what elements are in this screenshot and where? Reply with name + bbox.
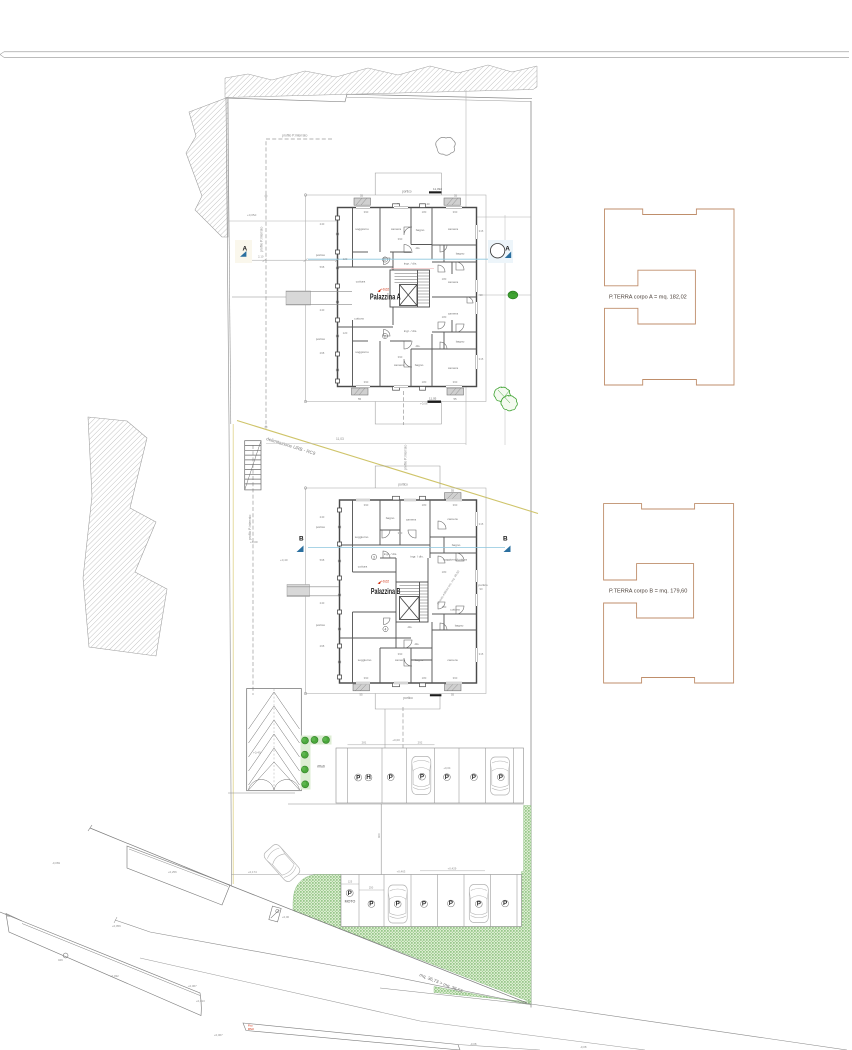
svg-text:portico: portico [316,337,326,341]
svg-text:11,03: 11,03 [336,437,344,441]
svg-text:2,10: 2,10 [258,255,264,259]
svg-text:profilo P.interrato: profilo P.interrato [248,515,252,540]
svg-text:55: 55 [359,693,363,697]
svg-text:A: A [243,246,248,253]
svg-text:292: 292 [418,741,423,745]
svg-text:-0,069: -0,069 [52,861,60,865]
svg-text:90: 90 [479,293,483,297]
svg-text:soggiorno: soggiorno [358,658,372,662]
svg-text:dis.: dis. [416,344,421,348]
svg-text:55: 55 [454,194,458,198]
svg-text:P: P [396,901,400,908]
svg-text:240: 240 [320,515,325,519]
svg-text:P: P [389,774,393,781]
svg-text:180: 180 [422,210,427,214]
svg-text:11,09d: 11,09d [433,187,442,191]
svg-text:bagno: bagno [415,658,424,662]
svg-text:cottura: cottura [354,317,364,321]
svg-text:+0,032: +0,032 [110,974,119,978]
svg-text:P: P [499,774,503,781]
svg-text:+0,04: +0,04 [443,766,451,770]
svg-text:3: 3 [373,556,375,560]
svg-text:soggiorno/cottura: soggiorno/cottura [443,558,467,562]
svg-text:RSU: RSU [248,1027,254,1031]
svg-text:568: 568 [320,265,325,269]
svg-text:11,05: 11,05 [429,397,437,401]
svg-text:portico: portico [398,483,408,487]
svg-text:P: P [477,901,481,908]
svg-text:camera: camera [406,518,417,522]
svg-text:+0,02: +0,02 [381,580,389,584]
svg-text:bagno: bagno [456,340,465,344]
svg-text:bagno: bagno [416,228,425,232]
svg-text:+0,06: +0,06 [420,402,428,406]
svg-text:2: 2 [384,335,386,339]
svg-text:A: A [505,245,510,252]
svg-text:390: 390 [398,355,403,359]
svg-text:soggiorno: soggiorno [355,227,369,231]
svg-text:profilo P.interrato: profilo P.interrato [282,134,307,138]
svg-text:180: 180 [442,570,447,574]
svg-text:camera: camera [447,658,458,662]
svg-text:180: 180 [422,503,427,507]
svg-text:240: 240 [320,222,325,226]
svg-text:+0,00: +0,00 [282,915,290,919]
svg-text:P: P [420,773,424,780]
svg-text:55: 55 [451,489,455,493]
svg-text:315: 315 [479,522,484,526]
svg-text:P.TERRA corpo A = mq. 182,02: P.TERRA corpo A = mq. 182,02 [609,295,687,301]
svg-text:MOTO: MOTO [345,900,356,904]
svg-text:360: 360 [453,503,458,507]
svg-text:120: 120 [343,331,348,335]
svg-text:P: P [445,774,449,781]
svg-text:55: 55 [360,194,364,198]
svg-text:camera: camera [394,363,405,367]
svg-text:315: 315 [479,652,484,656]
svg-text:P: P [356,775,360,782]
svg-text:+0,013: +0,013 [196,999,205,1003]
svg-text:P.TERRA corpo B = mq. 179,60: P.TERRA corpo B = mq. 179,60 [609,589,687,595]
svg-text:281: 281 [362,741,367,745]
svg-text:315: 315 [479,229,484,233]
svg-text:bagno: bagno [452,543,461,547]
svg-text:+0,174: +0,174 [248,870,257,874]
svg-text:360: 360 [453,380,458,384]
svg-text:360: 360 [453,210,458,214]
svg-text:55: 55 [453,397,457,401]
svg-text:+0,429: +0,429 [448,867,457,871]
svg-text:+0,067: +0,067 [188,984,197,988]
svg-text:180: 180 [442,605,447,609]
svg-text:55: 55 [358,397,362,401]
svg-text:camera: camera [448,280,459,284]
svg-text:55: 55 [451,693,455,697]
svg-text:268: 268 [320,351,325,355]
svg-text:P: P [348,890,352,897]
svg-text:568: 568 [320,558,325,562]
svg-text:1: 1 [384,258,386,262]
svg-text:rifiuti: rifiuti [317,765,325,769]
svg-text:portico: portico [402,190,412,194]
svg-text:+0,40: +0,40 [280,558,288,562]
svg-text:+0,02: +0,02 [381,288,389,292]
svg-text:cottura: cottura [356,280,366,284]
svg-text:+0,00: +0,00 [250,540,258,544]
svg-text:soggiorno: soggiorno [355,350,369,354]
svg-text:84: 84 [7,914,11,918]
svg-text:dis.: dis. [415,642,420,646]
svg-text:4: 4 [385,628,387,632]
svg-text:180: 180 [422,676,427,680]
svg-text:-0,08: -0,08 [470,1042,477,1046]
svg-text:soggiorno: soggiorno [355,535,369,539]
svg-text:+0,40: +0,40 [253,751,261,755]
svg-text:ingr. / dis.: ingr. / dis. [384,552,397,556]
svg-text:Palazzina A: Palazzina A [370,292,401,301]
svg-text:bagno: bagno [386,516,395,520]
svg-text:+0,059: +0,059 [112,924,121,928]
svg-text:portico: portico [403,696,413,700]
svg-text:Palazzina B: Palazzina B [371,587,401,596]
svg-text:portico: portico [316,525,326,529]
svg-text:390: 390 [364,380,369,384]
svg-text:390: 390 [364,503,369,507]
svg-text:390: 390 [398,237,403,241]
svg-text:portico: portico [316,253,326,257]
svg-text:049: 049 [58,958,63,962]
svg-text:bagno: bagno [415,363,424,367]
svg-text:ingr. / dis.: ingr. / dis. [404,262,417,266]
svg-text:ingr. / dis.: ingr. / dis. [410,555,423,559]
svg-text:camera: camera [448,227,459,231]
svg-text:390: 390 [398,652,403,656]
svg-text:P: P [422,901,426,908]
svg-text:dis.: dis. [416,246,421,250]
svg-text:bagno: bagno [455,624,464,628]
svg-text:250: 250 [369,886,374,890]
svg-text:390: 390 [364,676,369,680]
svg-text:180: 180 [442,277,447,281]
svg-text:390: 390 [398,531,403,535]
svg-text:240: 240 [320,601,325,605]
svg-text:600: 600 [377,833,381,838]
svg-text:268: 268 [320,644,325,648]
svg-text:-0,08: -0,08 [580,1045,587,1049]
svg-text:cottura: cottura [450,608,460,612]
svg-text:+0,067: +0,067 [214,1033,223,1037]
svg-text:P: P [449,900,453,907]
svg-text:+0,05d: +0,05d [247,213,257,217]
svg-text:bagno: bagno [456,252,465,256]
svg-text:P: P [472,774,476,781]
svg-text:camera: camera [447,517,458,521]
svg-text:camera: camera [391,227,402,231]
svg-text:+0,463: +0,463 [397,870,406,874]
svg-text:125: 125 [348,880,353,884]
svg-text:camera: camera [395,658,406,662]
svg-text:180: 180 [442,315,447,319]
svg-text:cottura: cottura [358,565,368,569]
svg-text:90: 90 [479,587,483,591]
svg-text:profilo P.interrato: profilo P.interrato [260,227,264,252]
svg-text:40: 40 [426,202,430,206]
svg-text:360: 360 [453,676,458,680]
svg-text:portico: portico [316,623,326,627]
svg-text:240: 240 [320,308,325,312]
svg-text:390: 390 [364,210,369,214]
svg-text:P: P [369,901,373,908]
svg-text:B: B [299,536,304,543]
svg-text:ingr. / dis.: ingr. / dis. [404,329,417,333]
svg-text:camera: camera [448,312,459,316]
svg-text:P: P [503,900,507,907]
svg-text:dis.: dis. [408,625,413,629]
svg-text:180: 180 [422,380,427,384]
svg-text:315: 315 [479,357,484,361]
svg-text:+0,256: +0,256 [168,870,177,874]
svg-text:camera: camera [448,366,459,370]
svg-text:120: 120 [343,257,348,261]
svg-text:+0,00: +0,00 [392,738,400,742]
svg-text:B: B [503,536,508,543]
svg-text:H: H [366,774,371,781]
